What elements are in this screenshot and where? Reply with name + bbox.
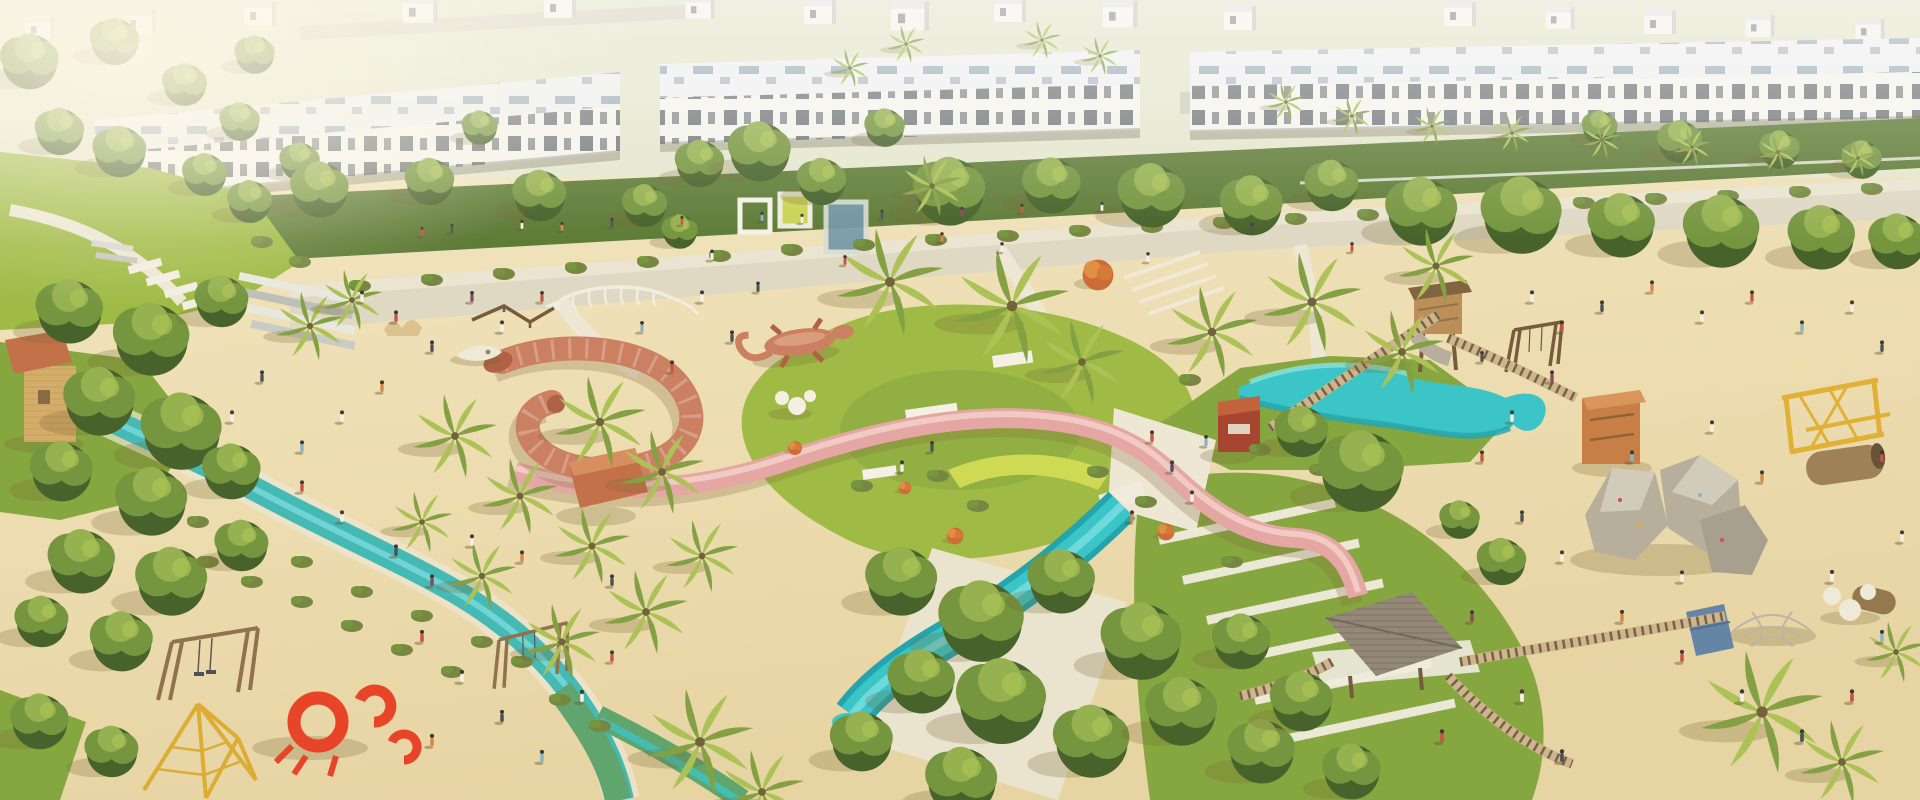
sun-haze <box>0 0 1920 800</box>
aerial-park-render <box>0 0 1920 800</box>
park-scene <box>0 0 1920 800</box>
